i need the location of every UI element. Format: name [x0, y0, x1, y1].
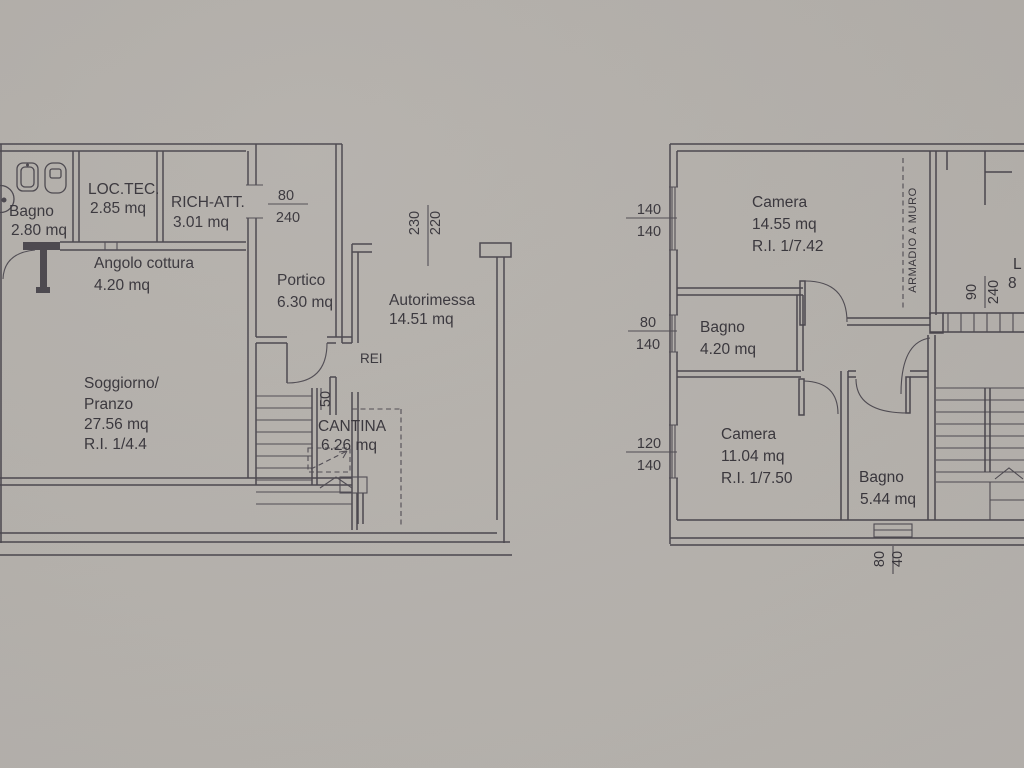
floor-plan-photo: 80 240 230 220 50 Bagno 2.80 mq LOC.TEC.… — [0, 0, 1024, 768]
first-floor-plan: 140 140 80 140 120 140 90 240 80 40 — [626, 144, 1024, 574]
room-label-pranzo: Pranzo — [84, 396, 133, 413]
vent-symbol — [874, 524, 912, 537]
room-area-bagno: 2.80 mq — [11, 222, 67, 239]
fire-rating-label: REI — [360, 351, 383, 366]
room-label-autorimessa: Autorimessa — [389, 292, 476, 309]
room-area-bagno2: 5.44 mq — [860, 491, 916, 508]
room-ri-soggiorno: R.I. 1/4.4 — [84, 436, 147, 453]
room-area-camera2: 11.04 mq — [721, 448, 784, 465]
room-area-cantina: 6.26 mq — [321, 437, 377, 454]
room-area-camera1: 14.55 mq — [752, 216, 817, 233]
room-label-rich-att: RICH-ATT. — [171, 194, 245, 211]
room-area-loc-tec: 2.85 mq — [90, 200, 146, 217]
counter-divider — [105, 242, 117, 250]
dim-140: 140 — [636, 337, 660, 353]
dim-230: 230 — [407, 211, 423, 235]
partial-label-l: L — [1013, 256, 1022, 273]
bagno-door — [3, 243, 50, 293]
wall-pier — [930, 313, 943, 333]
vent-dimension-80-40: 80 40 — [872, 546, 906, 574]
dim-40: 40 — [890, 551, 906, 567]
camera1-door — [800, 281, 847, 325]
room-area-rich-att: 3.01 mq — [173, 214, 229, 231]
room-label-loc-tec: LOC.TEC. — [88, 181, 159, 198]
floor-plan-drawing: 80 240 230 220 50 Bagno 2.80 mq LOC.TEC.… — [0, 0, 1024, 768]
first-stairs — [936, 313, 1024, 520]
dim-120: 120 — [637, 436, 661, 452]
portico-door — [287, 343, 327, 383]
room-area-angolo-cottura: 4.20 mq — [94, 277, 150, 294]
dim-50: 50 — [318, 391, 334, 407]
dim-240: 240 — [276, 210, 300, 226]
dim-140b: 140 — [637, 224, 661, 240]
dim-80: 80 — [872, 551, 888, 567]
room-label-bagno1: Bagno — [700, 319, 745, 336]
dim-240: 240 — [986, 280, 1002, 304]
sink-icon — [17, 163, 38, 191]
toilet-icon — [45, 163, 66, 193]
ground-floor-plan: 80 240 230 220 50 Bagno 2.80 mq LOC.TEC.… — [0, 144, 512, 555]
room-label-portico: Portico — [277, 272, 325, 289]
dim-80: 80 — [640, 315, 656, 331]
room-ri-camera1: R.I. 1/7.42 — [752, 238, 824, 255]
dim-140a: 140 — [637, 202, 661, 218]
room-label-bagno: Bagno — [9, 203, 54, 220]
wardrobe-label: ARMADIO A MURO — [907, 187, 919, 293]
dim-80: 80 — [278, 188, 294, 204]
stair-width-dimension: 50 — [318, 388, 334, 410]
dim-140: 140 — [637, 458, 661, 474]
room-label-camera2: Camera — [721, 426, 777, 443]
ground-outer-walls — [0, 144, 512, 555]
room-label-angolo-cottura: Angolo cottura — [94, 255, 194, 272]
dim-90: 90 — [964, 284, 980, 300]
room-area-soggiorno: 27.56 mq — [84, 416, 149, 433]
room-label-bagno2: Bagno — [859, 469, 904, 486]
room-area-portico: 6.30 mq — [277, 294, 333, 311]
garage-door-pier — [480, 243, 511, 257]
camera2-door — [799, 379, 838, 415]
room-label-soggiorno: Soggiorno/ — [84, 375, 160, 392]
room-label-camera1: Camera — [752, 194, 808, 211]
partial-label-8: 8 — [1008, 275, 1017, 292]
room-ri-camera2: R.I. 1/7.50 — [721, 470, 793, 487]
room-area-bagno1: 4.20 mq — [700, 341, 756, 358]
garage-door-dimension-230-220: 230 220 — [407, 211, 444, 235]
room-area-autorimessa: 14.51 mq — [389, 311, 454, 328]
door-dimension-90-240: 90 240 — [964, 276, 1002, 308]
dim-220: 220 — [428, 211, 444, 235]
room-label-cantina: CANTINA — [318, 418, 387, 435]
